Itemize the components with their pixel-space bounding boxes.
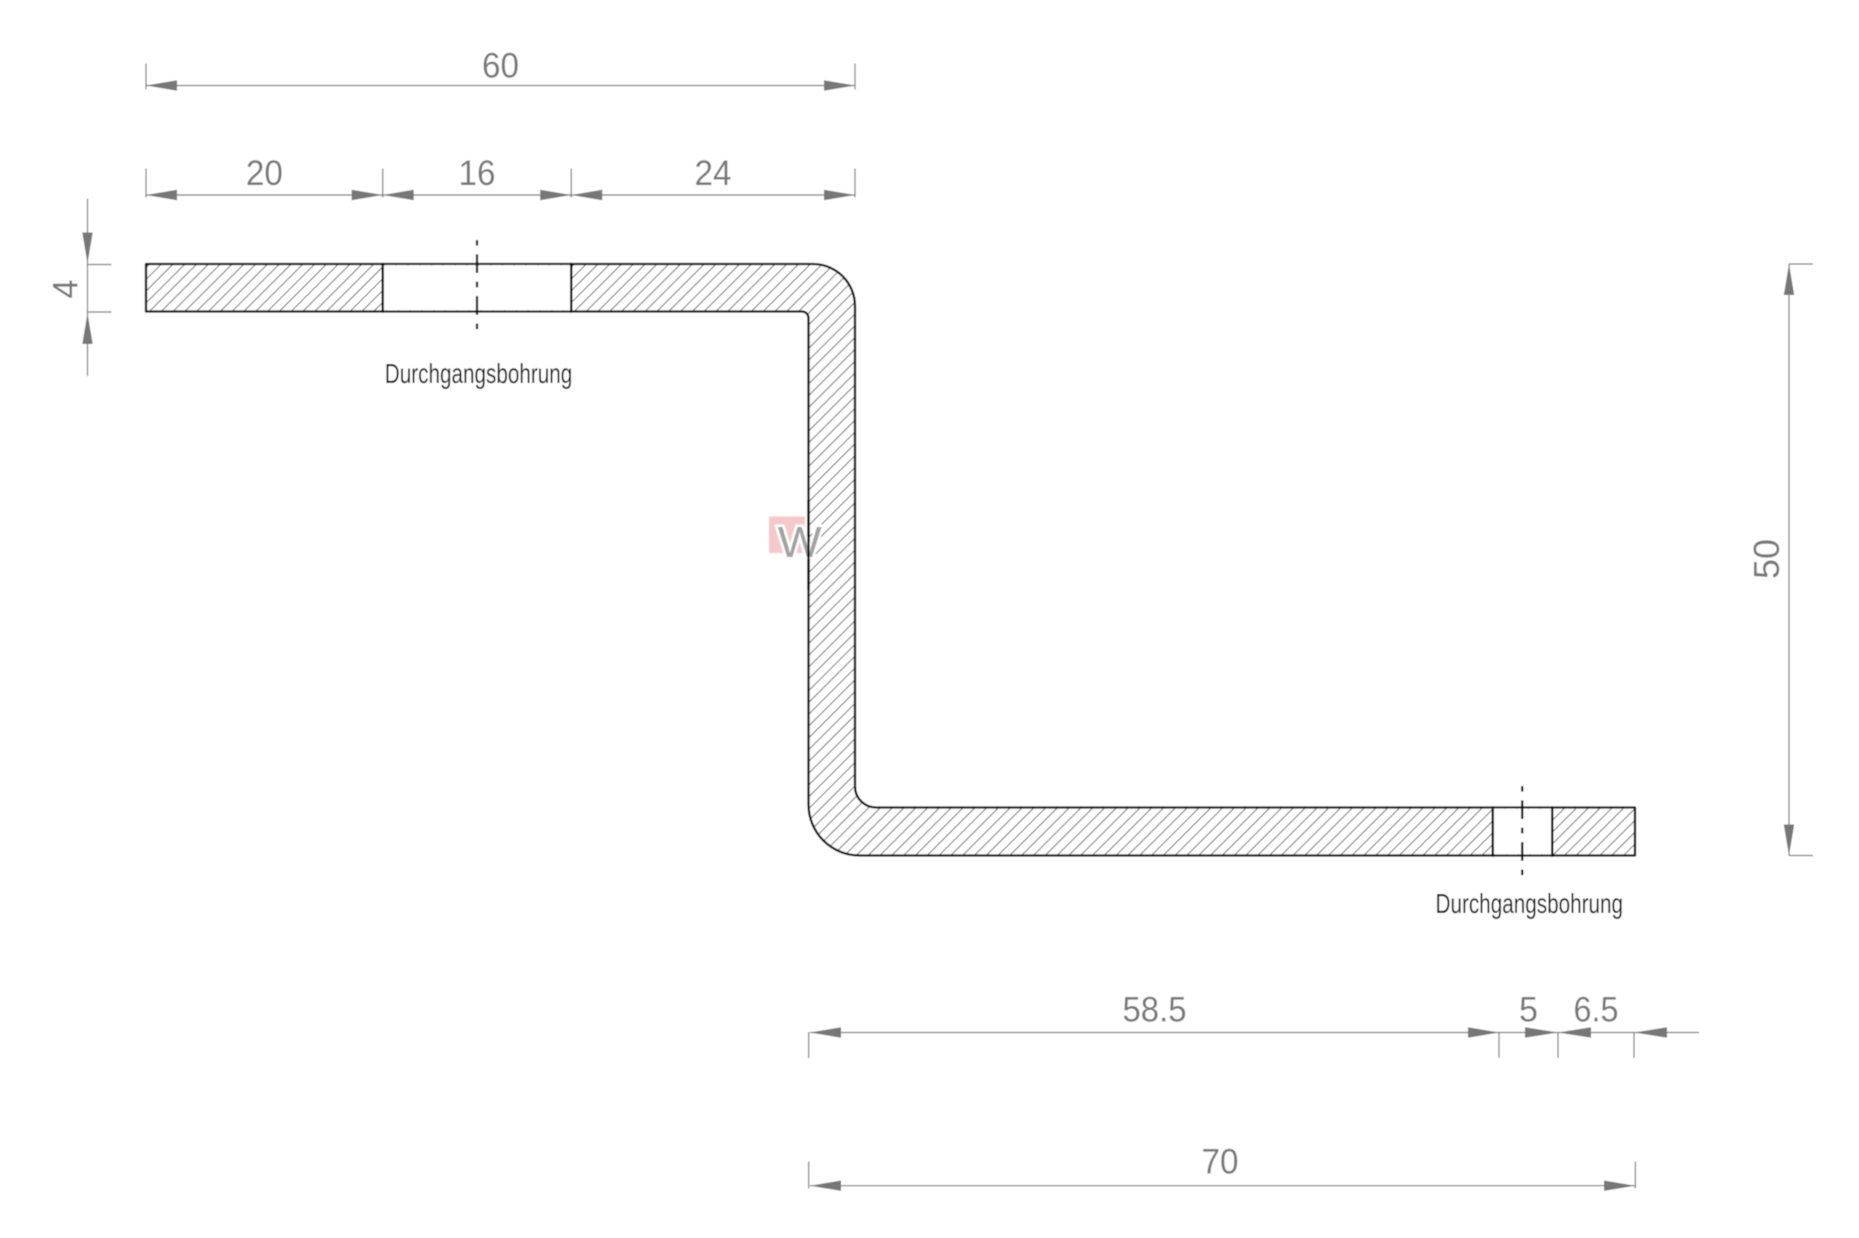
svg-text:Durchgangsbohrung: Durchgangsbohrung — [385, 358, 573, 389]
svg-text:5: 5 — [1519, 991, 1538, 1030]
svg-text:20: 20 — [246, 154, 283, 193]
svg-text:60: 60 — [482, 47, 519, 86]
svg-text:W: W — [778, 518, 822, 567]
svg-text:Durchgangsbohrung: Durchgangsbohrung — [1436, 888, 1624, 919]
svg-text:58.5: 58.5 — [1123, 991, 1187, 1030]
svg-text:50: 50 — [1746, 539, 1787, 579]
svg-text:4: 4 — [47, 280, 86, 299]
svg-text:70: 70 — [1202, 1143, 1239, 1182]
svg-text:6.5: 6.5 — [1574, 991, 1619, 1030]
svg-text:16: 16 — [459, 154, 496, 193]
svg-text:24: 24 — [695, 154, 732, 193]
